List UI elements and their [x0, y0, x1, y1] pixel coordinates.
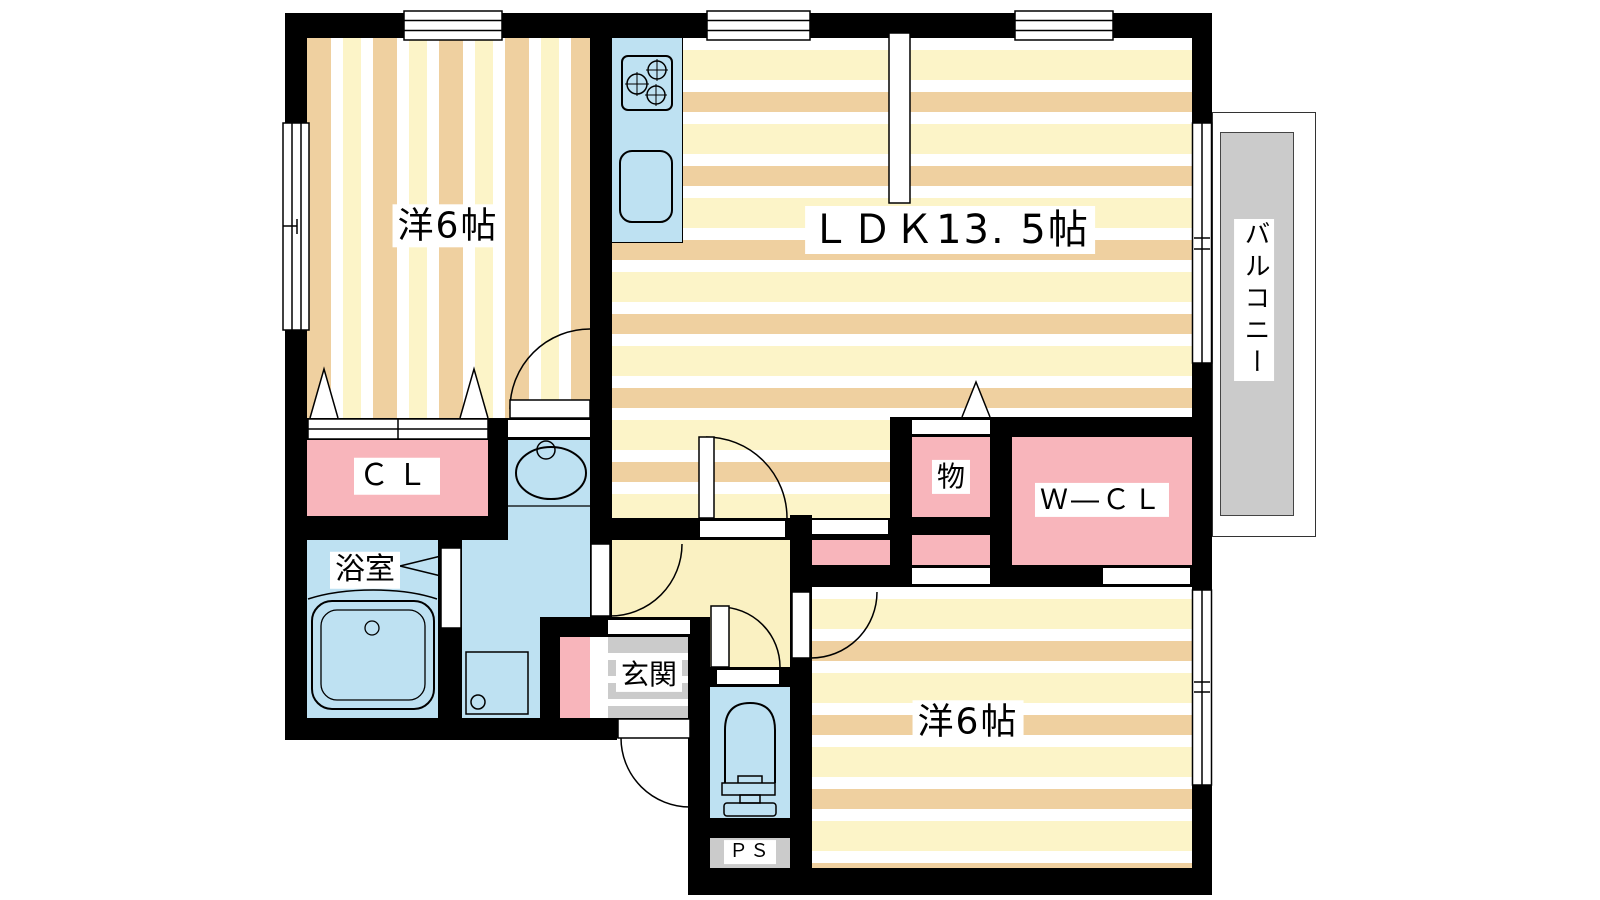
- hallway-floor: [612, 540, 790, 617]
- opening-hall-closet: [812, 519, 888, 535]
- wall: [688, 617, 710, 868]
- floor-plan: 洋6帖 ＬＤＫ13. 5帖 バルコニー ＣＬ 浴室 玄関 物 Ｗ―ＣＬ 洋6帖 …: [0, 0, 1600, 900]
- wall: [1192, 13, 1212, 895]
- wall: [285, 440, 307, 740]
- washroom-laundry-floor: [462, 618, 540, 718]
- room-bedroom2-label: 洋6帖: [913, 700, 1024, 743]
- kitchen-counter: [612, 38, 683, 243]
- wall: [285, 13, 1212, 38]
- wall: [710, 818, 790, 838]
- washroom-basin-nook-floor: [508, 437, 590, 540]
- doorway-toilet: [717, 669, 779, 685]
- doorway-ldk-hall: [700, 520, 785, 538]
- room-ldk-label: ＬＤＫ13. 5帖: [805, 206, 1095, 254]
- wall: [307, 516, 508, 540]
- wall: [285, 38, 307, 440]
- room-walk-in-closet-label: Ｗ―ＣＬ: [1035, 483, 1169, 517]
- hall-closet-floor: [810, 539, 890, 565]
- opening-storage: [912, 419, 990, 435]
- opening-entrance-step: [608, 619, 690, 635]
- wall: [688, 868, 1212, 895]
- room-closet-label: ＣＬ: [354, 458, 440, 495]
- wall: [590, 437, 612, 618]
- washroom-floor: [462, 540, 590, 618]
- hallway-floor-lower: [710, 617, 790, 667]
- room-balcony-label: バルコニー: [1234, 219, 1274, 381]
- wall: [590, 13, 612, 440]
- opening-walk-in-closet: [1103, 567, 1190, 585]
- room-storage-label: 物: [932, 460, 970, 494]
- room-pipe-space-label: ＰＳ: [724, 840, 776, 864]
- wall: [540, 718, 690, 738]
- wall: [912, 517, 990, 535]
- opening-storage-lower: [912, 567, 990, 585]
- wall: [790, 687, 812, 868]
- room-toilet-floor: [710, 687, 790, 818]
- room-entrance-label: 玄関: [616, 658, 682, 692]
- wall: [790, 515, 812, 687]
- shoe-cabinet: [560, 637, 590, 718]
- wall: [890, 417, 912, 587]
- wall: [438, 540, 462, 718]
- room-bathroom-label: 浴室: [330, 552, 400, 589]
- wall: [488, 437, 508, 517]
- room-bedroom1-label: 洋6帖: [393, 204, 504, 247]
- storage-lower-floor: [912, 535, 990, 565]
- doorway-bedroom1: [508, 419, 590, 438]
